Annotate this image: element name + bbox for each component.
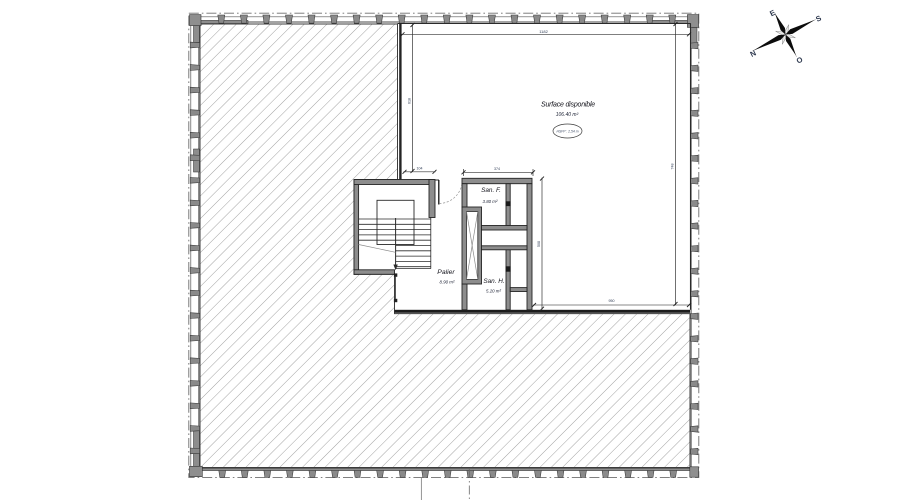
svg-text:1182: 1182 (539, 29, 548, 34)
svg-text:Palier: Palier (437, 269, 455, 276)
svg-text:104: 104 (417, 167, 423, 171)
svg-text:HSFP : 2,54 m: HSFP : 2,54 m (556, 129, 578, 133)
svg-text:508: 508 (537, 241, 541, 247)
svg-text:3.80 m²: 3.80 m² (483, 199, 498, 204)
svg-text:5.20 m²: 5.20 m² (486, 289, 501, 294)
svg-text:106.40 m²: 106.40 m² (556, 112, 579, 118)
svg-text:374: 374 (494, 167, 500, 171)
svg-text:Surface disponible: Surface disponible (541, 102, 595, 109)
svg-text:618: 618 (408, 98, 412, 104)
svg-text:San. H.: San. H. (483, 278, 504, 285)
svg-text:San. F.: San. F. (481, 187, 501, 194)
svg-text:950: 950 (609, 299, 615, 303)
svg-text:8.90 m²: 8.90 m² (440, 280, 455, 285)
svg-text:748: 748 (670, 164, 674, 170)
